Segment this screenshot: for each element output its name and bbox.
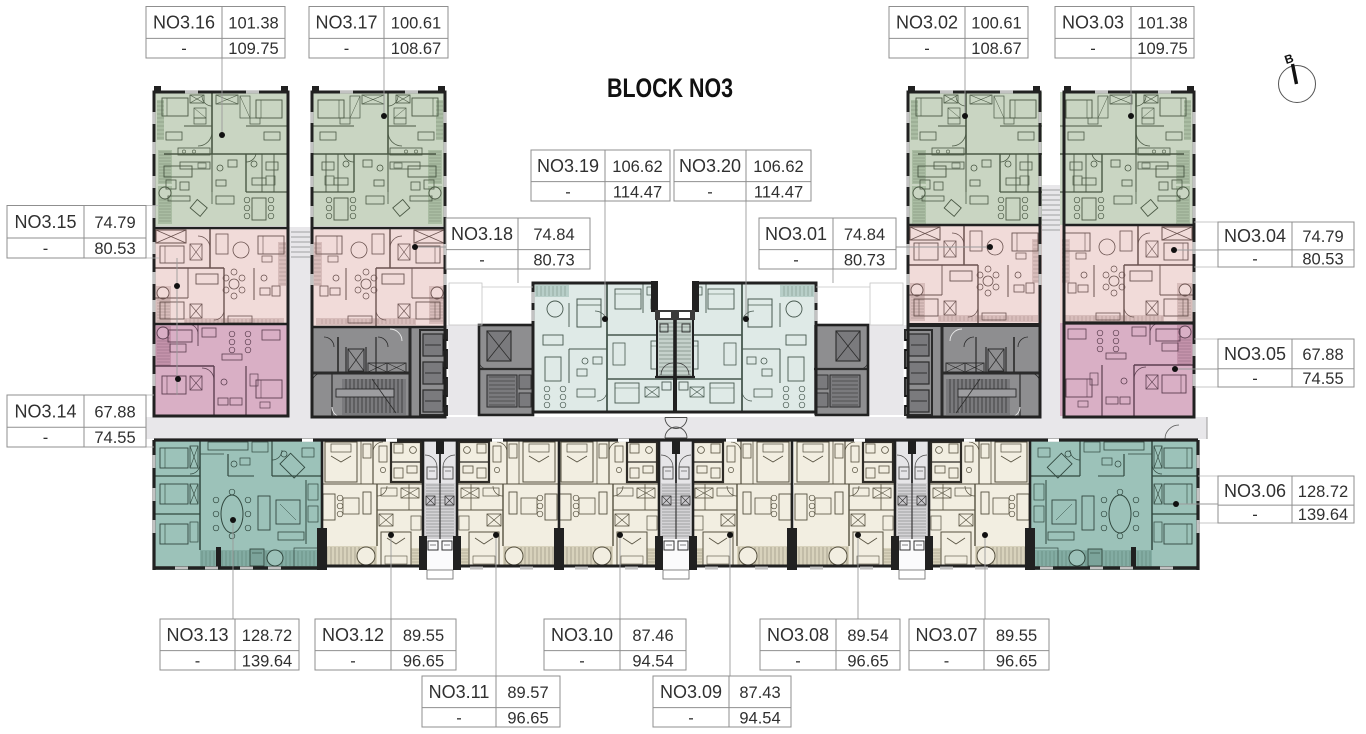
- svg-text:-: -: [1252, 506, 1258, 524]
- svg-text:94.54: 94.54: [632, 652, 673, 670]
- svg-text:74.84: 74.84: [533, 226, 574, 244]
- svg-text:106.62: 106.62: [612, 158, 662, 176]
- svg-text:-: -: [579, 652, 585, 670]
- svg-text:-: -: [1252, 250, 1258, 268]
- svg-text:96.65: 96.65: [847, 652, 888, 670]
- svg-text:-: -: [1090, 40, 1096, 58]
- svg-text:128.72: 128.72: [1298, 483, 1348, 501]
- svg-text:74.55: 74.55: [1302, 370, 1343, 388]
- svg-text:89.57: 89.57: [507, 684, 548, 702]
- svg-text:87.46: 87.46: [632, 627, 673, 645]
- svg-text:NO3.16: NO3.16: [153, 13, 215, 33]
- svg-text:NO3.10: NO3.10: [551, 625, 613, 645]
- svg-text:114.47: 114.47: [754, 183, 803, 201]
- svg-text:128.72: 128.72: [242, 627, 292, 645]
- svg-text:-: -: [795, 652, 801, 670]
- svg-text:-: -: [924, 40, 930, 58]
- svg-text:89.55: 89.55: [996, 627, 1037, 645]
- svg-text:-: -: [43, 429, 49, 447]
- svg-text:NO3.06: NO3.06: [1224, 481, 1286, 501]
- svg-text:-: -: [944, 652, 950, 670]
- svg-text:NO3.14: NO3.14: [14, 401, 76, 421]
- svg-text:-: -: [43, 240, 49, 258]
- svg-text:-: -: [688, 709, 694, 727]
- svg-text:-: -: [565, 183, 571, 201]
- svg-text:NO3.11: NO3.11: [429, 682, 490, 702]
- svg-text:139.64: 139.64: [242, 652, 292, 670]
- svg-text:100.61: 100.61: [391, 15, 441, 33]
- svg-text:NO3.15: NO3.15: [14, 212, 76, 232]
- svg-text:106.62: 106.62: [753, 158, 803, 176]
- svg-text:NO3.17: NO3.17: [315, 13, 377, 33]
- svg-text:-: -: [195, 652, 201, 670]
- svg-text:101.38: 101.38: [1137, 15, 1187, 33]
- svg-text:-: -: [479, 251, 485, 269]
- svg-text:139.64: 139.64: [1298, 506, 1348, 524]
- svg-text:89.54: 89.54: [847, 627, 888, 645]
- svg-text:108.67: 108.67: [391, 40, 441, 58]
- svg-text:74.79: 74.79: [1302, 228, 1343, 246]
- svg-text:-: -: [344, 40, 350, 58]
- svg-text:108.67: 108.67: [971, 40, 1021, 58]
- svg-text:NO3.13: NO3.13: [166, 625, 228, 645]
- svg-text:NO3.20: NO3.20: [679, 156, 741, 176]
- svg-text:96.65: 96.65: [403, 652, 444, 670]
- svg-text:67.88: 67.88: [1302, 346, 1343, 364]
- svg-text:87.43: 87.43: [739, 684, 780, 702]
- svg-text:96.65: 96.65: [507, 709, 548, 727]
- svg-text:NO3.07: NO3.07: [915, 625, 977, 645]
- svg-text:NO3.01: NO3.01: [765, 224, 827, 244]
- svg-text:114.47: 114.47: [613, 183, 662, 201]
- svg-text:109.75: 109.75: [228, 40, 278, 58]
- svg-text:74.79: 74.79: [94, 214, 135, 232]
- svg-text:BLOCK NO3: BLOCK NO3: [607, 73, 733, 103]
- svg-text:96.65: 96.65: [996, 652, 1037, 670]
- svg-text:100.61: 100.61: [971, 15, 1021, 33]
- svg-text:NO3.19: NO3.19: [537, 156, 599, 176]
- svg-text:-: -: [456, 709, 462, 727]
- svg-text:NO3.08: NO3.08: [767, 625, 829, 645]
- svg-text:80.73: 80.73: [844, 251, 885, 269]
- svg-text:NO3.12: NO3.12: [322, 625, 384, 645]
- svg-text:NO3.18: NO3.18: [451, 224, 513, 244]
- svg-text:80.53: 80.53: [1302, 250, 1343, 268]
- svg-text:67.88: 67.88: [94, 403, 135, 421]
- svg-text:74.84: 74.84: [844, 226, 885, 244]
- svg-text:-: -: [793, 251, 799, 269]
- svg-text:NO3.09: NO3.09: [660, 682, 722, 702]
- svg-text:NO3.04: NO3.04: [1224, 226, 1286, 246]
- svg-text:NO3.03: NO3.03: [1062, 13, 1124, 33]
- svg-text:80.53: 80.53: [94, 240, 135, 258]
- svg-text:NO3.05: NO3.05: [1224, 344, 1286, 364]
- svg-text:89.55: 89.55: [403, 627, 444, 645]
- svg-text:109.75: 109.75: [1137, 40, 1187, 58]
- svg-text:-: -: [350, 652, 356, 670]
- svg-text:101.38: 101.38: [228, 15, 278, 33]
- svg-text:80.73: 80.73: [533, 251, 574, 269]
- svg-text:-: -: [707, 183, 713, 201]
- svg-text:94.54: 94.54: [739, 709, 780, 727]
- svg-text:-: -: [181, 40, 187, 58]
- svg-text:-: -: [1252, 370, 1258, 388]
- svg-text:NO3.02: NO3.02: [896, 13, 958, 33]
- svg-text:74.55: 74.55: [94, 429, 135, 447]
